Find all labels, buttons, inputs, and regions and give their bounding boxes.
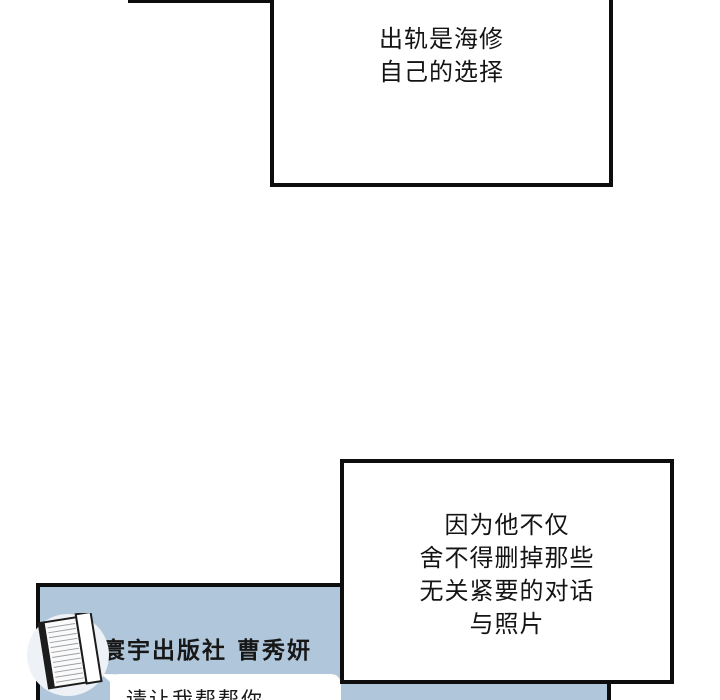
speech-line: 出轨是海修 (274, 23, 609, 56)
chat-bubble-text: 请让我帮帮你 (126, 686, 264, 700)
speech-line: 自己的选择 (274, 56, 609, 89)
speech-line: 与照片 (344, 608, 670, 641)
speech-line: 舍不得删掉那些 (344, 542, 670, 575)
chat-contact-name: 寰宇出版社 曹秀妍 (102, 631, 312, 665)
speech-box-bottom: 因为他不仅 舍不得删掉那些 无关紧要的对话 与照片 (340, 459, 674, 684)
speech-line: 因为他不仅 (344, 509, 670, 542)
speech-line: 无关紧要的对话 (344, 575, 670, 608)
chat-bubble: 请让我帮帮你 (110, 674, 341, 700)
book-icon (26, 613, 110, 697)
previous-panel-edge (128, 0, 274, 3)
webtoon-page: 出轨是海修 自己的选择 (0, 0, 720, 700)
speech-box-top: 出轨是海修 自己的选择 (270, 0, 613, 187)
